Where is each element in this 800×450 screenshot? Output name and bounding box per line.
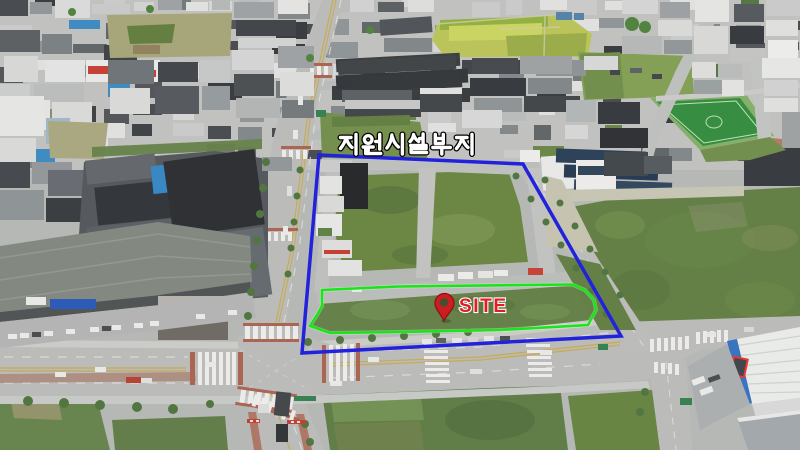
- svg-text:SITE: SITE: [459, 296, 508, 317]
